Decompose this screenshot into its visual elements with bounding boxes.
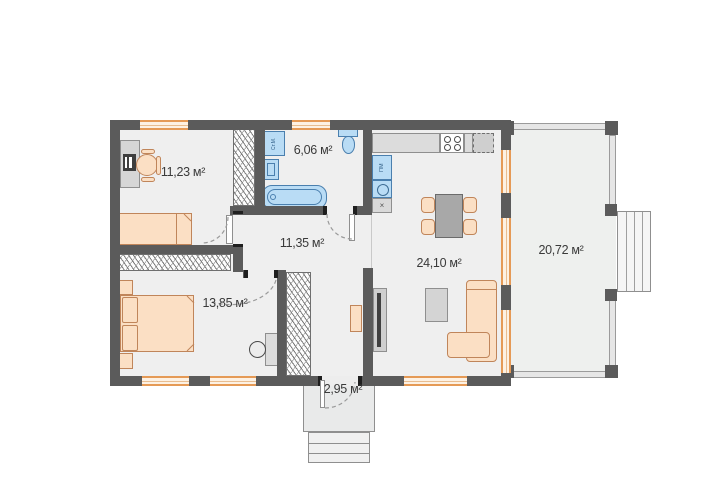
wardrobe: [286, 272, 311, 376]
sofa-chaise: [447, 332, 490, 358]
dishwasher: ПМ: [372, 155, 392, 180]
terrace-wall-top: [513, 123, 606, 130]
office-chair: [136, 154, 158, 176]
step-line: [634, 212, 635, 291]
stool: [249, 341, 266, 358]
porch-steps: [308, 432, 370, 463]
computer-slit: [129, 157, 132, 168]
sofa-armrest-line: [467, 289, 496, 290]
window: [140, 120, 188, 130]
terrace-wall-right: [609, 300, 616, 366]
wall-bathroom-bottom: [230, 206, 327, 215]
floor-plan: Ст.М. ПМ ×: [0, 0, 701, 502]
coffee-table: [425, 288, 448, 322]
kitchen-counter: [372, 133, 440, 153]
room-label-hallway: 11,35 м²: [280, 236, 324, 250]
step-line: [309, 443, 369, 444]
terrace-wall-right: [609, 135, 616, 205]
hallway-console: [350, 305, 362, 332]
window: [501, 150, 511, 193]
dining-chair: [421, 219, 435, 235]
sink-basin: [267, 163, 275, 176]
burner-icon: [444, 144, 451, 151]
terrace-post: [501, 121, 514, 135]
bed-pillow-line: [176, 214, 177, 244]
dishwasher-label: ПМ: [373, 156, 391, 179]
burner-icon: [454, 136, 461, 143]
wardrobe: [119, 254, 231, 271]
terrace-post: [605, 121, 618, 135]
bathtub-drain: [270, 194, 276, 200]
terrace-post: [605, 204, 617, 216]
terrace-post: [605, 365, 618, 378]
window: [142, 376, 189, 386]
window: [404, 376, 467, 386]
tv-icon: [377, 293, 381, 347]
window: [210, 376, 256, 386]
wall-kitchen-divider-upper: [363, 129, 372, 215]
room-label-kitchen-living: 24,10 м²: [416, 256, 461, 270]
door-leaf: [349, 214, 355, 241]
door-jamb: [244, 270, 248, 278]
wall-connector: [233, 254, 243, 272]
office-chair-armrest: [141, 149, 155, 154]
terrace-steps: [617, 211, 651, 292]
dining-chair: [421, 197, 435, 213]
door-leaf: [226, 215, 233, 244]
window: [501, 310, 511, 373]
bed-pillow: [122, 297, 138, 323]
single-bed: [119, 213, 192, 245]
door-jamb: [274, 270, 278, 278]
dining-chair: [463, 219, 477, 235]
door-jamb: [233, 211, 243, 214]
nightstand: [119, 353, 133, 369]
office-chair-armrest: [141, 177, 155, 182]
window: [292, 120, 330, 130]
kitchen-counter: [464, 133, 473, 153]
room-label-bedroom2: 13,85 м²: [202, 296, 247, 310]
room-label-bedroom1: 11,23 м²: [161, 165, 205, 179]
fridge: [473, 133, 494, 153]
wall-bathroom-left: [255, 129, 265, 210]
sink-bowl-icon: [377, 184, 389, 196]
nightstand: [119, 280, 133, 295]
wardrobe: [233, 129, 255, 206]
kitchen-module-label: ×: [380, 201, 385, 210]
washing-machine: Ст.М.: [263, 131, 285, 156]
bathroom-sink: [263, 159, 279, 180]
step-line: [642, 212, 643, 291]
terrace-post: [605, 289, 617, 301]
room-label-terrace: 20,72 м²: [538, 243, 583, 257]
step-line: [309, 453, 369, 454]
burner-icon: [444, 136, 451, 143]
toilet-bowl: [342, 136, 355, 154]
burner-icon: [454, 144, 461, 151]
wall-bedroom2-right: [277, 270, 286, 376]
wall-bedrooms-divider: [110, 245, 243, 254]
room-label-porch: 2,95 м²: [324, 382, 362, 396]
bed-pillow: [122, 325, 138, 351]
kitchen-module: ×: [372, 198, 392, 213]
dining-table: [435, 194, 463, 238]
kitchen-sink: [372, 180, 392, 198]
door-jamb: [233, 244, 243, 247]
room-label-bathroom: 6,06 м²: [294, 143, 332, 157]
wall-living-divider-lower: [363, 268, 373, 376]
washing-machine-label: Ст.М.: [264, 132, 284, 155]
step-line: [626, 212, 627, 291]
computer-slit: [125, 157, 127, 168]
terrace-door-window: [501, 218, 511, 285]
terrace-wall-bottom: [513, 371, 606, 378]
stove: [440, 133, 464, 153]
computer-icon: [123, 154, 136, 171]
dining-chair: [463, 197, 477, 213]
kitchen-zone-line: [371, 215, 372, 268]
door-jamb: [323, 206, 327, 215]
